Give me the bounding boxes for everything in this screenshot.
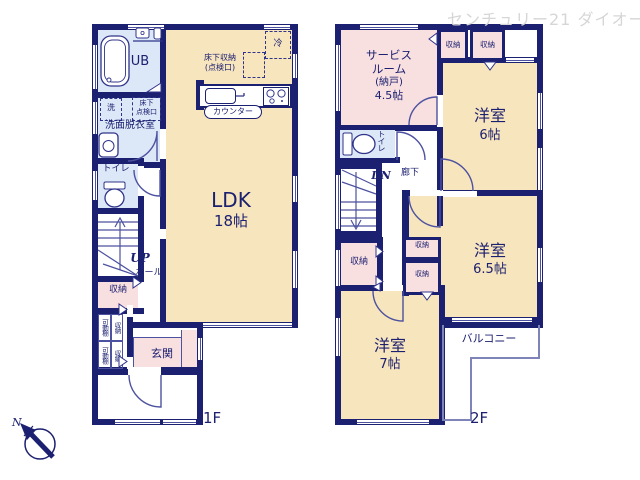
folding-door-mark bbox=[119, 304, 127, 315]
west6-size-label: 6帖 bbox=[455, 129, 525, 143]
compass-needle bbox=[31, 434, 53, 457]
west7-name-label: 洋室 bbox=[355, 337, 425, 355]
underfloor-storage-label-1: 床下収納 bbox=[196, 54, 244, 63]
door-arc-toilet-1f bbox=[134, 170, 160, 196]
ldk-name-label: LDK bbox=[200, 189, 262, 211]
folding-door-mark bbox=[429, 33, 437, 45]
west6-name-label: 洋室 bbox=[455, 107, 525, 125]
service-room-label-1: サービス bbox=[352, 49, 426, 62]
service-room-label-3: (納戸) bbox=[352, 77, 426, 88]
toilet-bowl-2f-icon bbox=[353, 135, 375, 154]
stairs-1f-lines bbox=[98, 218, 138, 276]
closet-label: 収納 bbox=[403, 242, 441, 250]
service-room-label-4: 4.5帖 bbox=[352, 90, 426, 102]
toilet-bowl-1f-icon bbox=[105, 189, 124, 207]
stairs-dn-label: DN bbox=[370, 170, 392, 182]
folding-door-mark bbox=[376, 246, 383, 257]
toilet-1f-label: トイレ bbox=[96, 165, 136, 175]
door-arc-west7 bbox=[373, 291, 403, 321]
storage-2f-label: 収納 bbox=[341, 258, 377, 268]
folding-door-mark bbox=[484, 62, 496, 70]
door-arc-toilet-2f bbox=[397, 132, 425, 160]
toilet-tank-1f-icon bbox=[104, 182, 125, 189]
west7-size-label: 7帖 bbox=[355, 358, 425, 372]
washroom-label: 洗面脱衣室 bbox=[97, 120, 163, 131]
fridge-label: 冷 bbox=[265, 40, 291, 50]
toilet-2f-label: トイレ bbox=[376, 130, 387, 151]
stove-burner-icon bbox=[270, 99, 274, 103]
ldk-size-label: 18帖 bbox=[200, 213, 262, 230]
west65-name-label: 洋室 bbox=[455, 242, 525, 260]
compass: N bbox=[11, 416, 55, 459]
stairs-up-label: UP bbox=[129, 252, 151, 265]
entrance-label: 玄関 bbox=[141, 348, 183, 360]
underfloor-storage-label-2: (点検口) bbox=[196, 64, 244, 73]
compass-north-label: N bbox=[11, 416, 22, 429]
watermark: センチュリー21 ダイオー bbox=[447, 6, 637, 30]
washer-label: 洗 bbox=[100, 104, 122, 113]
closet-label: 収納 bbox=[403, 271, 441, 279]
hall-label: ホール bbox=[133, 269, 165, 279]
folding-door-mark bbox=[119, 356, 127, 367]
vanity-drain bbox=[141, 31, 144, 34]
door-arc-west65 bbox=[409, 196, 440, 227]
door-arc-washroom bbox=[128, 131, 157, 161]
underfloor-hatch-label-1: 床下 bbox=[132, 100, 161, 108]
ub-label: UB bbox=[129, 55, 151, 69]
folding-door-mark-ub bbox=[147, 83, 161, 92]
folding-door-mark bbox=[421, 292, 433, 300]
bathtub-drain bbox=[107, 78, 111, 82]
washstand-bowl bbox=[103, 141, 114, 152]
west65-size-label: 6.5帖 bbox=[455, 263, 525, 277]
stove-burner-icon bbox=[278, 90, 285, 97]
storage-1f-label: 収納 bbox=[98, 286, 138, 296]
underfloor-hatch-label-2: 点検口 bbox=[132, 109, 161, 117]
floor2-label: 2F bbox=[470, 410, 506, 427]
stove-burner-icon bbox=[267, 90, 274, 97]
floorplan-canvas: センチュリー21 ダイオー 可動棚 収納 可動棚 収納 カウンター bbox=[0, 0, 640, 480]
corridor-label: 廊下 bbox=[396, 169, 424, 179]
linework-overlay: N bbox=[0, 0, 640, 480]
service-room-label-2: ルーム bbox=[352, 63, 426, 76]
stove-knob-icon bbox=[281, 100, 283, 102]
faucet-icon bbox=[236, 93, 244, 96]
balcony-label: バルコニー bbox=[458, 333, 520, 345]
closet-label: 収納 bbox=[470, 41, 505, 49]
toilet-tank-2f-icon bbox=[343, 133, 352, 155]
vanity-cabinet bbox=[154, 28, 161, 39]
bathtub-inner bbox=[105, 40, 126, 82]
door-arc-entrance bbox=[129, 375, 161, 407]
door-arc-west6 bbox=[441, 159, 473, 191]
floor1-label: 1F bbox=[203, 410, 239, 427]
closet-label: 収納 bbox=[438, 41, 468, 49]
